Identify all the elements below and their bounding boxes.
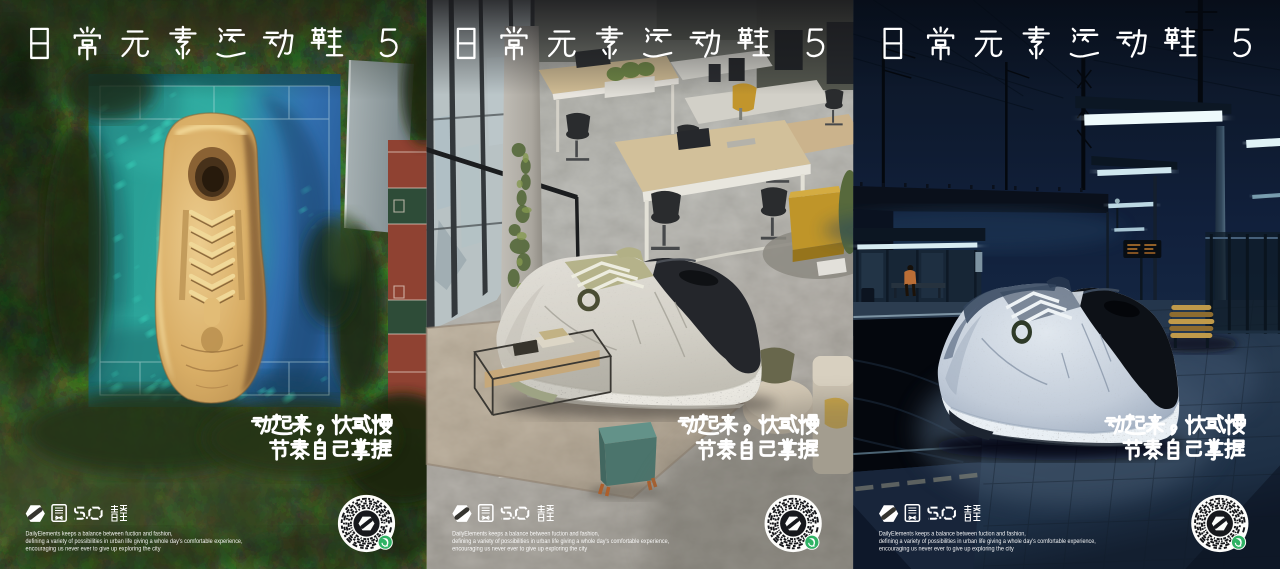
svg-text:encouraging us never ever to g: encouraging us never ever to give up exp… bbox=[26, 545, 162, 552]
svg-text:DailyElements keeps a balance: DailyElements keeps a balance between fu… bbox=[26, 530, 173, 537]
svg-text:defining a variety of possibil: defining a variety of possibilities in u… bbox=[26, 538, 243, 545]
svg-text:defining a variety of possibil: defining a variety of possibilities in u… bbox=[879, 538, 1096, 545]
svg-text:DailyElements keeps a balance: DailyElements keeps a balance between fu… bbox=[879, 530, 1026, 537]
svg-text:encouraging us never ever to g: encouraging us never ever to give up exp… bbox=[879, 545, 1015, 552]
svg-text:defining a variety of possibil: defining a variety of possibilities in u… bbox=[452, 538, 669, 545]
svg-text:DailyElements keeps a balance: DailyElements keeps a balance between fu… bbox=[452, 530, 599, 537]
svg-text:encouraging us never ever to g: encouraging us never ever to give up exp… bbox=[452, 545, 588, 552]
